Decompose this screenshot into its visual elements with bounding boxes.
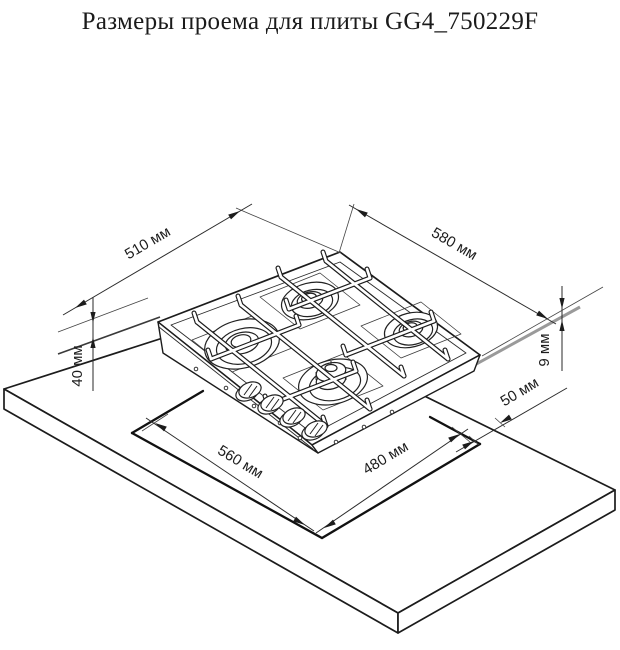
dim-label-50: 50 мм	[498, 374, 542, 410]
dim-label-40: 40 мм	[69, 345, 86, 386]
dim-label-510: 510 мм	[122, 223, 174, 263]
dim-label-580: 580 мм	[428, 224, 480, 264]
dim-label-9: 9 мм	[536, 333, 553, 366]
diagram-page: Размеры проема для плиты GG4_750229F	[0, 0, 620, 650]
installation-diagram: 510 мм 580 мм 40 мм 9 мм	[0, 0, 620, 650]
